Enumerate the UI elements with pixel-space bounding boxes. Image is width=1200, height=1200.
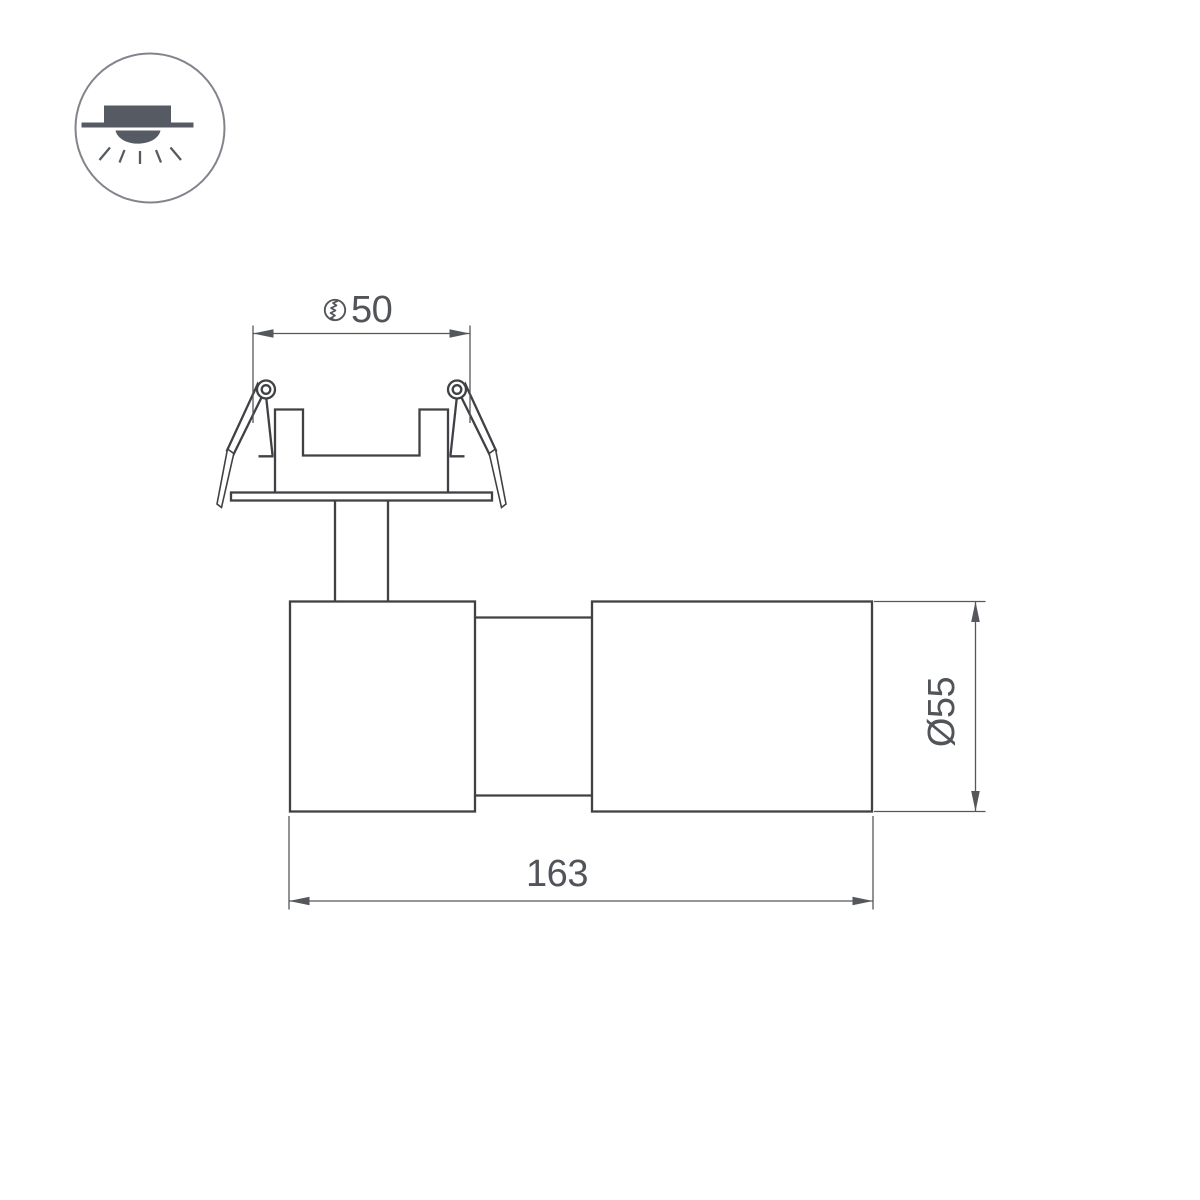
icon-lamp-dome [116,131,161,144]
body-front-cylinder [592,602,872,812]
recessed-downlight-icon [76,54,225,203]
clip-pivot-outer [257,381,275,399]
arrowhead-left [289,897,310,906]
arrowhead-top [971,602,980,623]
hole-cutout-icon [325,300,345,320]
light-ray [156,150,161,163]
clip-arm [227,385,262,455]
arrowhead-right [450,329,471,338]
dimension-cutout-50: 50 [253,289,470,423]
light-ray [100,148,111,161]
light-ray [120,150,125,163]
clip-spring-leaf [450,399,465,457]
arrowhead-left [253,329,274,338]
spring-clip-right [448,381,506,508]
diameter-value-label: Ø55 [921,677,963,747]
clip-spring-leaf [259,399,274,457]
trim-flange [231,493,492,501]
arrowhead-bottom [971,791,980,812]
arrowhead-right [853,897,874,906]
dimension-diameter-55: Ø55 [874,602,986,812]
technical-drawing-canvas: 50 Ø55 163 [0,0,1200,1200]
icon-housing-block [104,106,171,125]
dimension-length-163: 163 [289,816,873,910]
icon-ceiling-line [82,123,194,128]
fixture-drawing [217,381,872,812]
clip-pivot-outer [448,381,466,399]
light-ray [171,148,182,161]
clip-arm [462,385,497,455]
hole-cutout-torn-edge [331,301,339,320]
icon-light-rays [100,148,182,165]
length-value-label: 163 [526,853,588,895]
body-rear-cylinder [290,602,475,812]
cutout-value-label: 50 [351,289,392,331]
icon-border-circle [76,54,225,203]
spring-clip-left [217,381,275,508]
mounting-cup-profile [275,410,448,493]
